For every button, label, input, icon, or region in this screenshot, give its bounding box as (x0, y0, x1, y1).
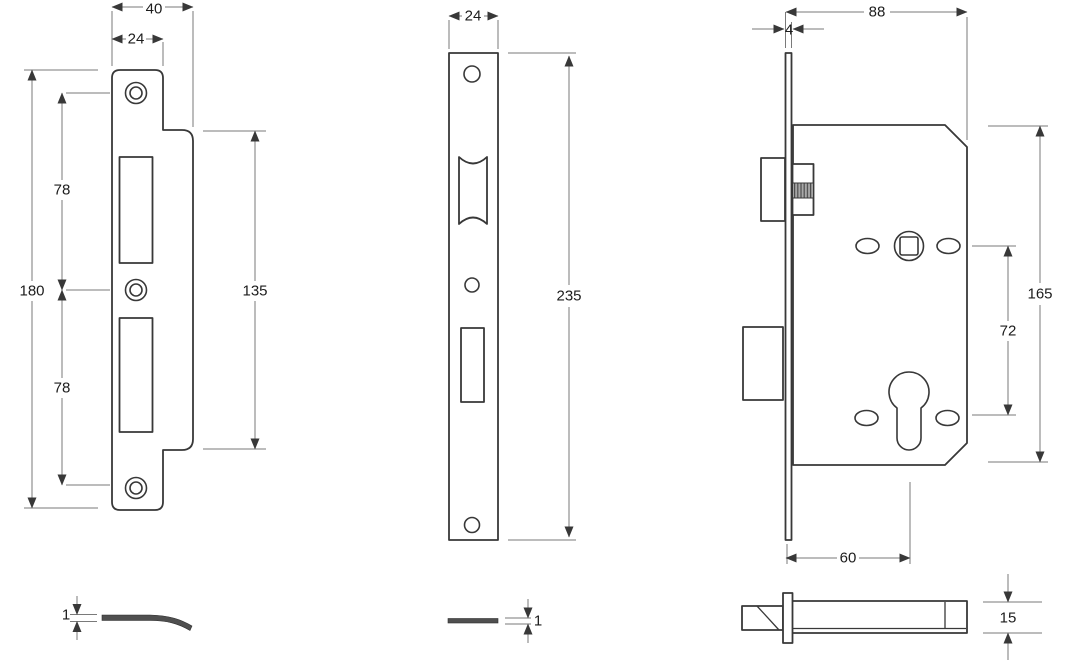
lock-case-outline (793, 125, 967, 465)
dim-label-fp-24: 24 (465, 8, 482, 25)
lock-technical-drawing: 40 24 78 180 78 (0, 0, 1080, 662)
strike-plate-outline (112, 70, 193, 510)
dim-strike-body-height: 135 (203, 131, 268, 449)
dim-backset: 60 (786, 482, 910, 567)
faceplate-bar-bottom (783, 593, 793, 643)
dim-label-72: 72 (1000, 323, 1017, 340)
faceplate-side-profile (448, 619, 498, 624)
dim-label-40: 40 (146, 1, 163, 18)
strike-plate-side-view: 1 (62, 596, 192, 640)
dim-case-height: 165 (988, 126, 1053, 462)
dim-label-88: 88 (869, 4, 886, 21)
lock-case-bottom-view: 15 (742, 574, 1042, 660)
faceplate-front-view: 24 235 (449, 8, 582, 541)
dim-label-fp-1: 1 (534, 613, 542, 630)
dim-strike-lower-centres: 78 (54, 290, 110, 485)
dim-label-135: 135 (242, 283, 267, 300)
strike-deadbolt-cutout (120, 318, 153, 432)
dim-label-strike-1: 1 (62, 607, 70, 624)
strike-plate-front-view: 40 24 78 180 78 (19, 1, 267, 511)
dim-strike-face-width: 24 (112, 31, 163, 67)
dim-strike-upper-centres: 78 (54, 93, 110, 290)
dim-label-78-upper: 78 (54, 182, 71, 199)
dim-faceplate-thickness: 1 (505, 599, 542, 643)
dim-label-235: 235 (556, 288, 581, 305)
dim-label-4: 4 (785, 22, 793, 39)
faceplate-latch-cutout (459, 157, 487, 224)
dim-strike-overall-height: 180 (19, 70, 98, 508)
latch-guide-hatch (793, 183, 814, 198)
dim-label-15: 15 (1000, 610, 1017, 627)
dim-faceplate-height: 235 (508, 53, 582, 540)
dim-case-thickness: 15 (983, 574, 1042, 660)
dim-label-60: 60 (840, 550, 857, 567)
lock-faceplate-edge (786, 53, 792, 540)
dim-strike-thickness: 1 (62, 596, 97, 640)
dim-faceplate-width: 24 (449, 8, 498, 50)
lock-technical-drawing-page: 40 24 78 180 78 (0, 0, 1080, 662)
strike-latch-cutout (120, 157, 153, 263)
latch-tip-outline (742, 606, 783, 630)
strike-plate-side-profile (102, 615, 192, 631)
faceplate-deadbolt-cutout (461, 328, 484, 402)
deadbolt-head (743, 327, 783, 400)
dim-centres: 72 (972, 246, 1016, 415)
dim-faceplate-edge-thickness: 4 (752, 22, 824, 49)
lock-case-side-view: 88 4 165 72 (743, 4, 1053, 567)
dim-label-24: 24 (128, 31, 145, 48)
faceplate-outline (449, 53, 498, 540)
dim-label-78-lower: 78 (54, 380, 71, 397)
dim-label-165: 165 (1027, 286, 1052, 303)
dim-label-180: 180 (19, 283, 44, 300)
dim-case-depth: 88 (786, 4, 968, 141)
latch-bolt-head (761, 158, 785, 221)
faceplate-side-view: 1 (448, 599, 542, 643)
